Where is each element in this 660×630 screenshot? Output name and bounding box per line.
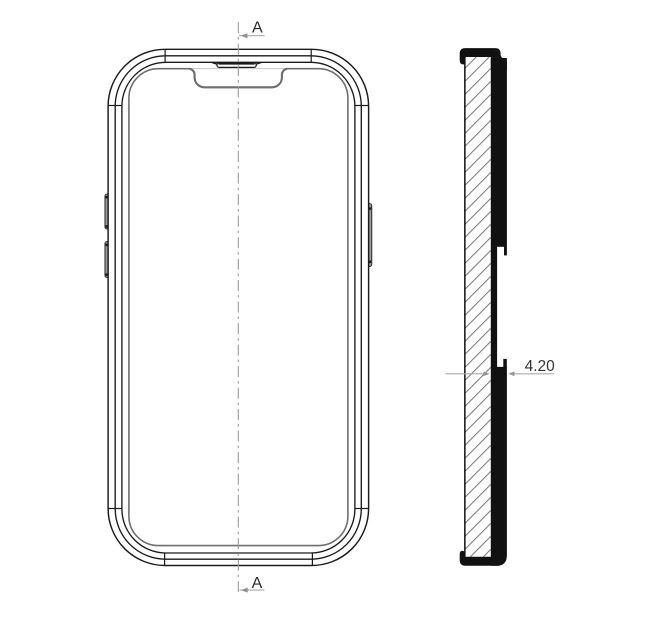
svg-text:4.20: 4.20 (525, 358, 556, 375)
svg-text:A: A (252, 575, 263, 592)
svg-text:A: A (252, 20, 263, 37)
